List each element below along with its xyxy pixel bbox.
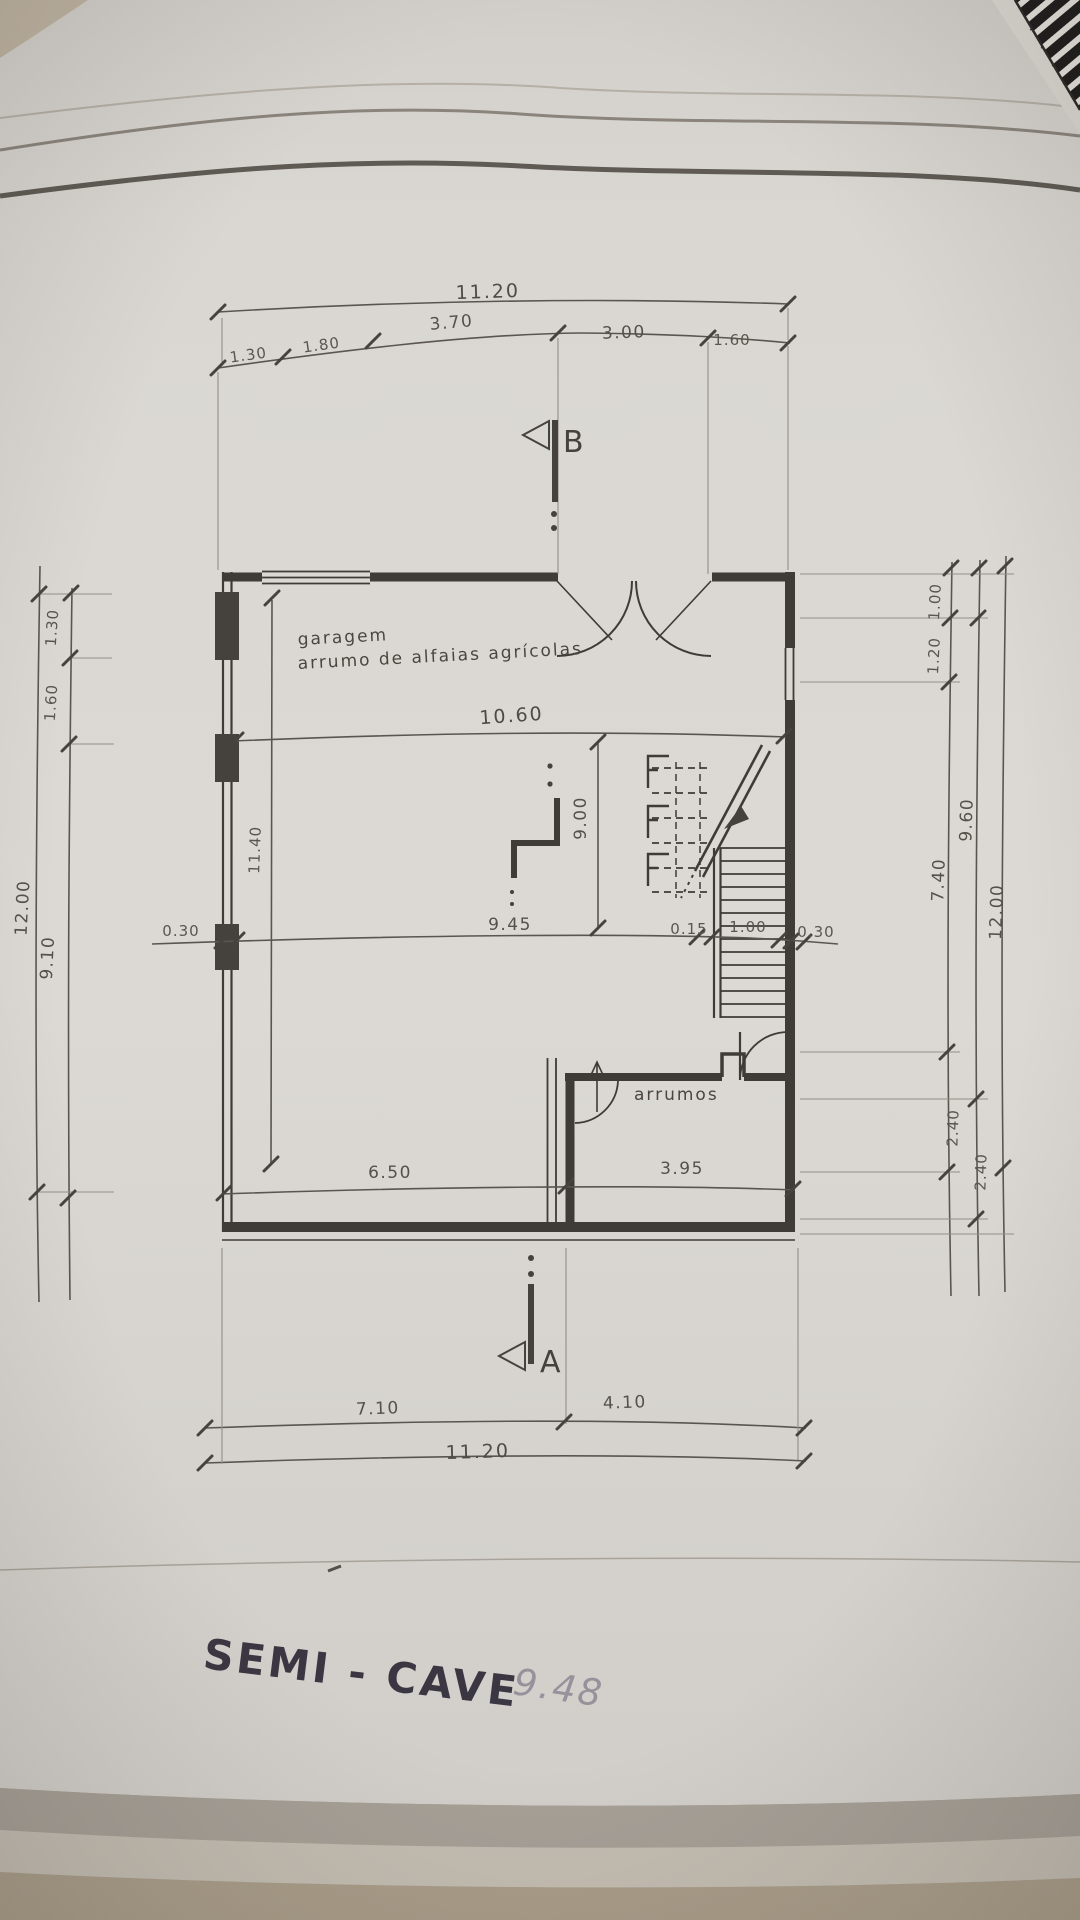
plan-sheet-svg: B A 11.20 1.30 1.80 3.70 3.00 1.60 10.60… (0, 0, 1080, 1920)
photo-vignette (0, 0, 1080, 1920)
photo-of-floor-plan: B A 11.20 1.30 1.80 3.70 3.00 1.60 10.60… (0, 0, 1080, 1920)
